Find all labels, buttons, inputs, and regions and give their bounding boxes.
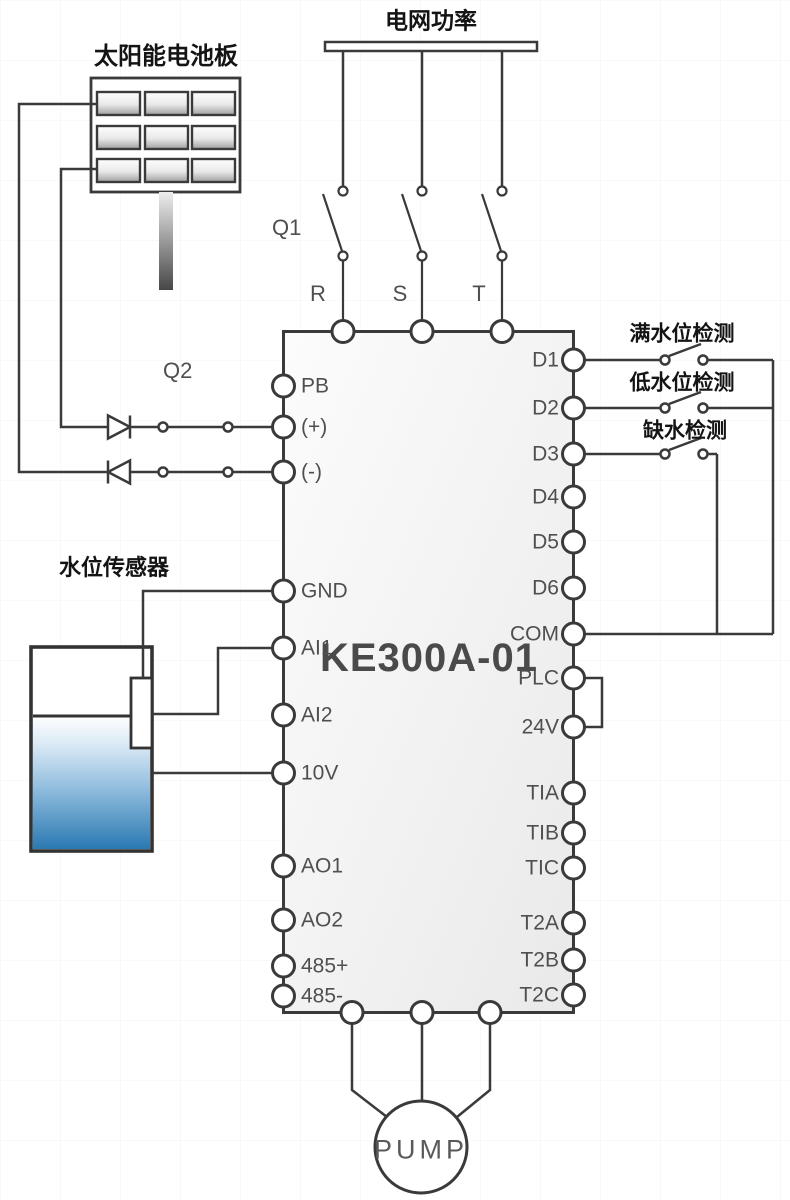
terminal-D2 [563, 397, 585, 419]
phase-s-label: S [393, 283, 408, 305]
low-water-detect-label: 低水位检测 [630, 373, 735, 394]
label-D2: D2 [455, 398, 559, 419]
grid-power-bus [325, 42, 537, 186]
q1-label: Q1 [272, 217, 301, 239]
terminal-10V [273, 762, 295, 784]
q1-blade-t [482, 194, 501, 251]
solar-panel-pole [159, 192, 173, 290]
q2-contact-2-negative [224, 468, 233, 477]
diode-negative [108, 461, 130, 484]
pump-wire-u [352, 1024, 387, 1117]
terminal-COM [563, 623, 585, 645]
terminal-T2B [563, 949, 585, 971]
terminal-D6 [563, 577, 585, 599]
terminal-485p [273, 955, 295, 977]
pv-wire-positive [61, 169, 108, 427]
q2-label: Q2 [163, 360, 192, 382]
terminal-PB [273, 375, 295, 397]
ai1-sensor-wire [152, 648, 272, 714]
grid-bus-bar [325, 42, 537, 51]
terminal-R [332, 321, 354, 343]
label-D1: D1 [455, 350, 559, 371]
q1-contact-bottom-r [339, 252, 348, 261]
grid-power-label: 电网功率 [385, 10, 477, 33]
terminal-U [341, 1002, 363, 1024]
label-485p: 485+ [301, 956, 348, 977]
terminal-AO1 [273, 855, 295, 877]
label-plus: (+) [301, 417, 327, 438]
pump-wiring [352, 1024, 490, 1193]
sensor-wiring [143, 591, 272, 773]
terminal-D3 [563, 443, 585, 465]
level-switch-wiring [584, 344, 773, 727]
phase-r-label: R [310, 283, 326, 305]
terminal-T2A [563, 912, 585, 934]
solar-cells [97, 92, 235, 182]
terminal-AO2 [273, 909, 295, 931]
terminal-GND [273, 580, 295, 602]
solar-panel-label: 太阳能电池板 [94, 45, 238, 69]
terminal-D5 [563, 531, 585, 553]
label-T2B: T2B [455, 950, 559, 971]
label-PB: PB [301, 376, 329, 397]
water-shortage-detect-label: 缺水检测 [643, 421, 727, 442]
terminal-D4 [563, 486, 585, 508]
terminal-T [491, 321, 513, 343]
label-TIB: TIB [455, 823, 559, 844]
terminal-V [411, 1002, 433, 1024]
q2-contact-1-negative [159, 468, 168, 477]
terminal-D1 [563, 349, 585, 371]
terminal-minus [273, 461, 295, 483]
terminal-485n [273, 985, 295, 1007]
label-24V: 24V [455, 717, 559, 738]
water-sensor-label: 水位传感器 [59, 557, 169, 579]
terminal-plus [273, 416, 295, 438]
q1-blade-r [323, 194, 342, 251]
label-T2A: T2A [455, 913, 559, 934]
label-TIA: TIA [455, 783, 559, 804]
q1-contact-top-s [418, 187, 427, 196]
q2-contact-2-positive [224, 423, 233, 432]
label-D3: D3 [455, 444, 559, 465]
label-AI1: AI1 [301, 638, 333, 659]
water-tank-symbol [31, 647, 152, 851]
label-T2C: T2C [455, 985, 559, 1006]
label-minus: (-) [301, 462, 322, 483]
pump-wire-w [457, 1024, 490, 1117]
diagram-canvas [0, 0, 790, 1200]
pump-label: PUMP [374, 1137, 468, 1164]
terminal-S [411, 321, 433, 343]
phase-t-label: T [472, 283, 485, 305]
level-sensor-body [131, 678, 152, 748]
label-TIC: TIC [455, 858, 559, 879]
full-water-detect-label: 满水位检测 [630, 324, 735, 345]
label-GND: GND [301, 581, 348, 602]
terminal-TIC [563, 857, 585, 879]
terminal-AI1 [273, 637, 295, 659]
terminal-24V [563, 716, 585, 738]
diode-positive [108, 416, 130, 439]
label-AI2: AI2 [301, 705, 333, 726]
q1-blade-s [402, 194, 421, 251]
label-D5: D5 [455, 532, 559, 553]
label-D4: D4 [455, 487, 559, 508]
label-10V: 10V [301, 763, 338, 784]
label-485n: 485- [301, 986, 343, 1007]
label-AO1: AO1 [301, 856, 343, 877]
solar-panel-symbol [91, 78, 240, 290]
label-COM: COM [455, 624, 559, 645]
terminal-PLC [563, 667, 585, 689]
q1-contact-bottom-s [418, 252, 427, 261]
wiring-diagram: 电网功率 太阳能电池板 水位传感器 满水位检测 低水位检测 缺水检测 Q1 Q2… [0, 0, 790, 1200]
terminal-TIA [563, 782, 585, 804]
label-D6: D6 [455, 578, 559, 599]
full-level-switch-blade [669, 344, 701, 356]
terminal-T2C [563, 984, 585, 1006]
q1-contact-bottom-t [498, 252, 507, 261]
gnd-sensor-wire [143, 591, 272, 678]
q2-contact-1-positive [159, 423, 168, 432]
label-PLC: PLC [455, 668, 559, 689]
plc-24v-jumper [584, 678, 602, 727]
q1-contact-top-r [339, 187, 348, 196]
terminal-AI2 [273, 704, 295, 726]
terminal-TIB [563, 822, 585, 844]
label-AO2: AO2 [301, 910, 343, 931]
q1-contact-top-t [498, 187, 507, 196]
